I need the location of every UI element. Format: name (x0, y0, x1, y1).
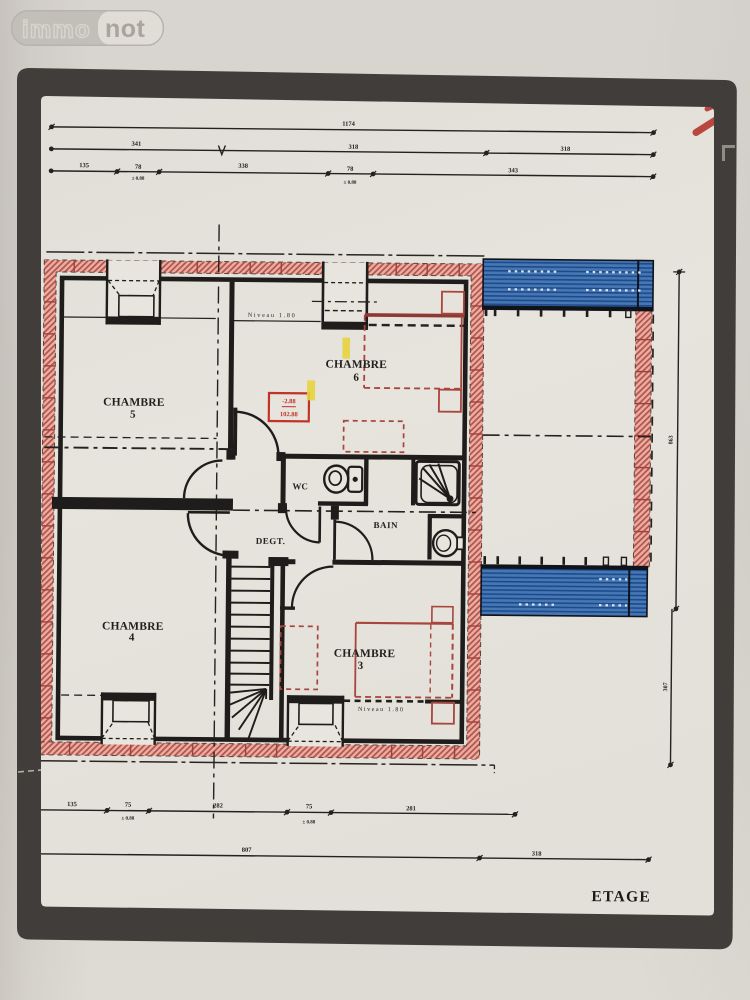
svg-text:CHAMBRE: CHAMBRE (334, 648, 396, 661)
svg-text:WC: WC (292, 481, 308, 491)
svg-text:-2.88: -2.88 (282, 398, 296, 405)
svg-text:6: 6 (353, 372, 359, 384)
svg-text:78: 78 (135, 164, 142, 171)
svg-text:75: 75 (306, 803, 313, 810)
svg-text:± 0.88: ± 0.88 (122, 817, 135, 822)
svg-text:135: 135 (67, 801, 78, 808)
svg-text:281: 281 (406, 805, 416, 812)
svg-text:338: 338 (238, 163, 249, 170)
svg-text:135: 135 (79, 162, 90, 169)
svg-text:immo: immo (22, 17, 91, 44)
svg-text:DEGT.: DEGT. (256, 536, 286, 546)
svg-text:± 0.88: ± 0.88 (302, 820, 315, 825)
svg-text:Niveau 1.80: Niveau 1.80 (248, 312, 295, 319)
svg-text:3: 3 (358, 660, 364, 672)
svg-text:318: 318 (532, 851, 543, 858)
svg-text:± 0.88: ± 0.88 (132, 177, 145, 182)
svg-text:5: 5 (130, 409, 136, 421)
svg-text:807: 807 (242, 847, 253, 854)
svg-text:341: 341 (131, 141, 141, 148)
svg-text:78: 78 (347, 166, 354, 173)
svg-text:CHAMBRE: CHAMBRE (326, 359, 388, 372)
svg-text:ETAGE: ETAGE (591, 888, 651, 906)
svg-text:CHAMBRE: CHAMBRE (103, 396, 165, 409)
svg-text:282: 282 (213, 802, 223, 809)
svg-text:1174: 1174 (342, 121, 355, 128)
svg-text:863: 863 (669, 435, 675, 444)
svg-text:BAIN: BAIN (373, 520, 398, 530)
svg-text:not: not (105, 15, 146, 43)
svg-text:102.88: 102.88 (280, 411, 299, 418)
svg-text:318: 318 (348, 144, 359, 151)
svg-text:343: 343 (508, 167, 519, 174)
svg-text:Niveau 1.80: Niveau 1.80 (358, 706, 403, 713)
svg-text:± 0.88: ± 0.88 (344, 181, 357, 186)
svg-text:75: 75 (125, 802, 132, 809)
svg-text:4: 4 (129, 632, 135, 644)
svg-text:318: 318 (560, 146, 571, 153)
svg-text:307: 307 (663, 682, 669, 691)
